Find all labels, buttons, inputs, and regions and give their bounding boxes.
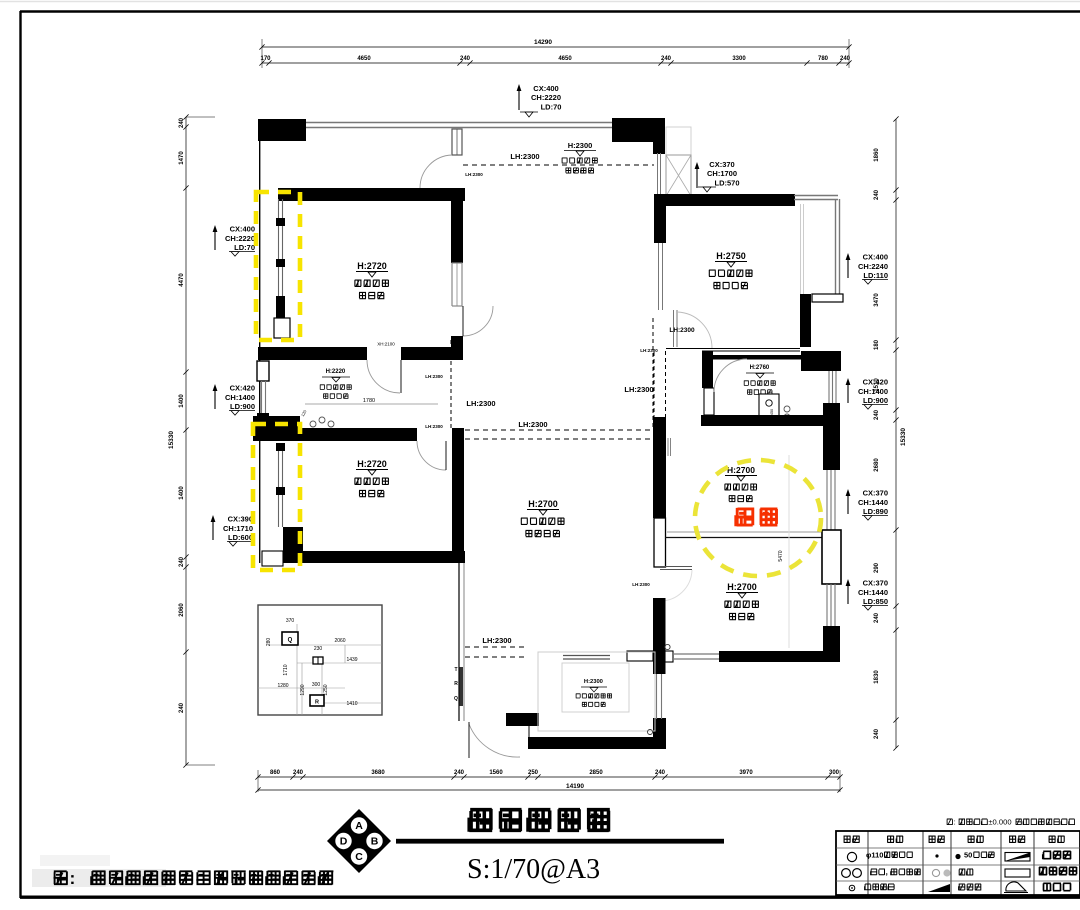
svg-text:LH:2300: LH:2300 [466, 399, 495, 408]
svg-text:4650: 4650 [558, 56, 572, 62]
svg-text:4650: 4650 [357, 56, 371, 62]
svg-text:170: 170 [260, 56, 271, 62]
svg-text:φ110: φ110 [866, 851, 883, 860]
svg-text:LH:2300: LH:2300 [465, 172, 483, 177]
svg-text:1280: 1280 [277, 683, 288, 689]
svg-text:B: B [371, 836, 379, 848]
svg-text:H:2700: H:2700 [727, 582, 757, 592]
svg-text:300: 300 [312, 682, 321, 688]
svg-text:240: 240 [874, 189, 880, 200]
svg-text:CX:370: CX:370 [709, 160, 734, 169]
svg-text:CX:370: CX:370 [863, 579, 888, 588]
svg-text:CH:1700: CH:1700 [707, 169, 737, 178]
svg-text:1860: 1860 [874, 148, 880, 162]
svg-text:,: , [886, 868, 888, 877]
svg-text:1560: 1560 [489, 770, 503, 776]
svg-text:LD:70: LD:70 [541, 103, 562, 112]
svg-text:240: 240 [179, 702, 185, 713]
svg-text:14190: 14190 [566, 783, 584, 790]
svg-text:D: D [340, 836, 348, 848]
svg-text:LD:900: LD:900 [230, 402, 255, 411]
svg-text:T: T [454, 667, 457, 673]
svg-text:LD:110: LD:110 [863, 271, 888, 280]
svg-text:S:1/70@A3: S:1/70@A3 [467, 854, 600, 885]
svg-text:LH:2300: LH:2300 [632, 582, 650, 587]
svg-text:H:2300: H:2300 [568, 141, 593, 150]
svg-text:H:2700: H:2700 [727, 465, 755, 475]
svg-text:5470: 5470 [778, 550, 784, 561]
svg-text:H:2750: H:2750 [716, 251, 746, 261]
svg-text:3970: 3970 [739, 770, 753, 776]
svg-text:CX:370: CX:370 [863, 489, 888, 498]
svg-text:860: 860 [270, 770, 281, 776]
svg-text:1400: 1400 [179, 486, 185, 500]
svg-text:CH:1400: CH:1400 [225, 393, 255, 402]
svg-text:240: 240 [874, 409, 880, 420]
svg-text:250: 250 [528, 770, 539, 776]
svg-text:CX:420: CX:420 [863, 378, 888, 387]
svg-text:LH:2300: LH:2300 [425, 374, 443, 379]
svg-text:LD:850: LD:850 [863, 597, 888, 606]
svg-text:240: 240 [874, 728, 880, 739]
svg-text:15330: 15330 [900, 428, 907, 446]
svg-text:780: 780 [818, 56, 829, 62]
svg-text:3470: 3470 [874, 293, 880, 307]
svg-text:15330: 15330 [168, 431, 175, 449]
svg-text:1250: 1250 [323, 684, 329, 695]
svg-text:Q: Q [454, 696, 458, 702]
svg-text:LH:2300: LH:2300 [669, 327, 695, 334]
svg-text:3300: 3300 [732, 56, 746, 62]
svg-text:±0.000: ±0.000 [988, 818, 1011, 827]
svg-text:LH:2300: LH:2300 [425, 424, 443, 429]
svg-text:240: 240 [840, 56, 851, 62]
svg-text:LD:70: LD:70 [234, 243, 255, 252]
svg-text:230: 230 [314, 646, 323, 652]
svg-text:H:2700: H:2700 [528, 499, 558, 509]
svg-text:240: 240 [655, 770, 666, 776]
svg-text:LD:600: LD:600 [228, 533, 253, 542]
svg-text:2060: 2060 [334, 638, 345, 644]
svg-text:C: C [355, 851, 363, 863]
svg-text:LH:2300: LH:2300 [624, 385, 653, 394]
svg-text:H:2720: H:2720 [357, 459, 387, 469]
svg-text:H:2760: H:2760 [750, 365, 770, 371]
svg-text:50: 50 [964, 851, 972, 860]
svg-text:1710: 1710 [283, 664, 289, 675]
svg-text:H:2300: H:2300 [584, 679, 603, 685]
svg-text:1830: 1830 [874, 670, 880, 684]
svg-text:240: 240 [179, 117, 185, 128]
svg-text:1780: 1780 [363, 398, 375, 404]
svg-text:LH:2300: LH:2300 [640, 348, 658, 353]
svg-text:240: 240 [293, 770, 304, 776]
svg-text:14290: 14290 [534, 39, 552, 46]
svg-text:370: 370 [286, 618, 295, 624]
svg-text::: : [954, 818, 956, 827]
svg-text:300: 300 [829, 770, 840, 776]
svg-text:180: 180 [874, 339, 880, 350]
svg-text:R: R [454, 681, 458, 687]
svg-text:280: 280 [266, 638, 272, 647]
svg-text:CX:420: CX:420 [230, 384, 255, 393]
svg-text:H:2220: H:2220 [326, 369, 346, 375]
svg-text:A: A [355, 820, 363, 832]
svg-text:CX:400: CX:400 [863, 253, 888, 262]
svg-text:LD:890: LD:890 [863, 507, 888, 516]
svg-text:LH:2300: LH:2300 [482, 636, 511, 645]
svg-text:CX:400: CX:400 [533, 84, 558, 93]
svg-text:240: 240 [661, 56, 672, 62]
svg-text:CX:390: CX:390 [228, 515, 253, 524]
svg-text:CH:1400: CH:1400 [858, 387, 888, 396]
svg-text:2850: 2850 [589, 770, 603, 776]
svg-text:CX:400: CX:400 [230, 225, 255, 234]
svg-text:LH:2300: LH:2300 [510, 152, 539, 161]
svg-text:240: 240 [179, 556, 185, 567]
svg-text:LD:570: LD:570 [714, 179, 739, 188]
svg-text:LD:900: LD:900 [863, 396, 888, 405]
svg-text:CH:1440: CH:1440 [858, 588, 888, 597]
svg-text:1439: 1439 [346, 657, 357, 663]
svg-text:CH:1440: CH:1440 [858, 498, 888, 507]
svg-text:4470: 4470 [179, 273, 185, 287]
svg-text:LH:2300: LH:2300 [518, 420, 547, 429]
svg-text:R: R [315, 700, 319, 706]
svg-text:CH:1710: CH:1710 [223, 524, 253, 533]
svg-text:1410: 1410 [346, 701, 357, 707]
svg-text:CH:2220: CH:2220 [531, 93, 561, 102]
svg-text:1400: 1400 [179, 394, 185, 408]
svg-text:1290: 1290 [300, 684, 306, 695]
svg-text:240: 240 [460, 56, 471, 62]
svg-text:240: 240 [454, 770, 465, 776]
svg-text:1470: 1470 [179, 151, 185, 165]
svg-text:2680: 2680 [874, 458, 880, 472]
svg-text:Q: Q [288, 638, 293, 644]
svg-text:450: 450 [770, 409, 774, 415]
svg-text:H:2720: H:2720 [357, 261, 387, 271]
svg-text::: : [70, 868, 76, 888]
svg-text:3680: 3680 [371, 770, 385, 776]
svg-text:CH:2240: CH:2240 [858, 262, 888, 271]
svg-text:CH:2220: CH:2220 [225, 234, 255, 243]
svg-text:240: 240 [874, 612, 880, 623]
svg-text:290: 290 [874, 562, 880, 573]
svg-text:XH:2100: XH:2100 [377, 342, 395, 347]
svg-text:2060: 2060 [179, 603, 185, 617]
